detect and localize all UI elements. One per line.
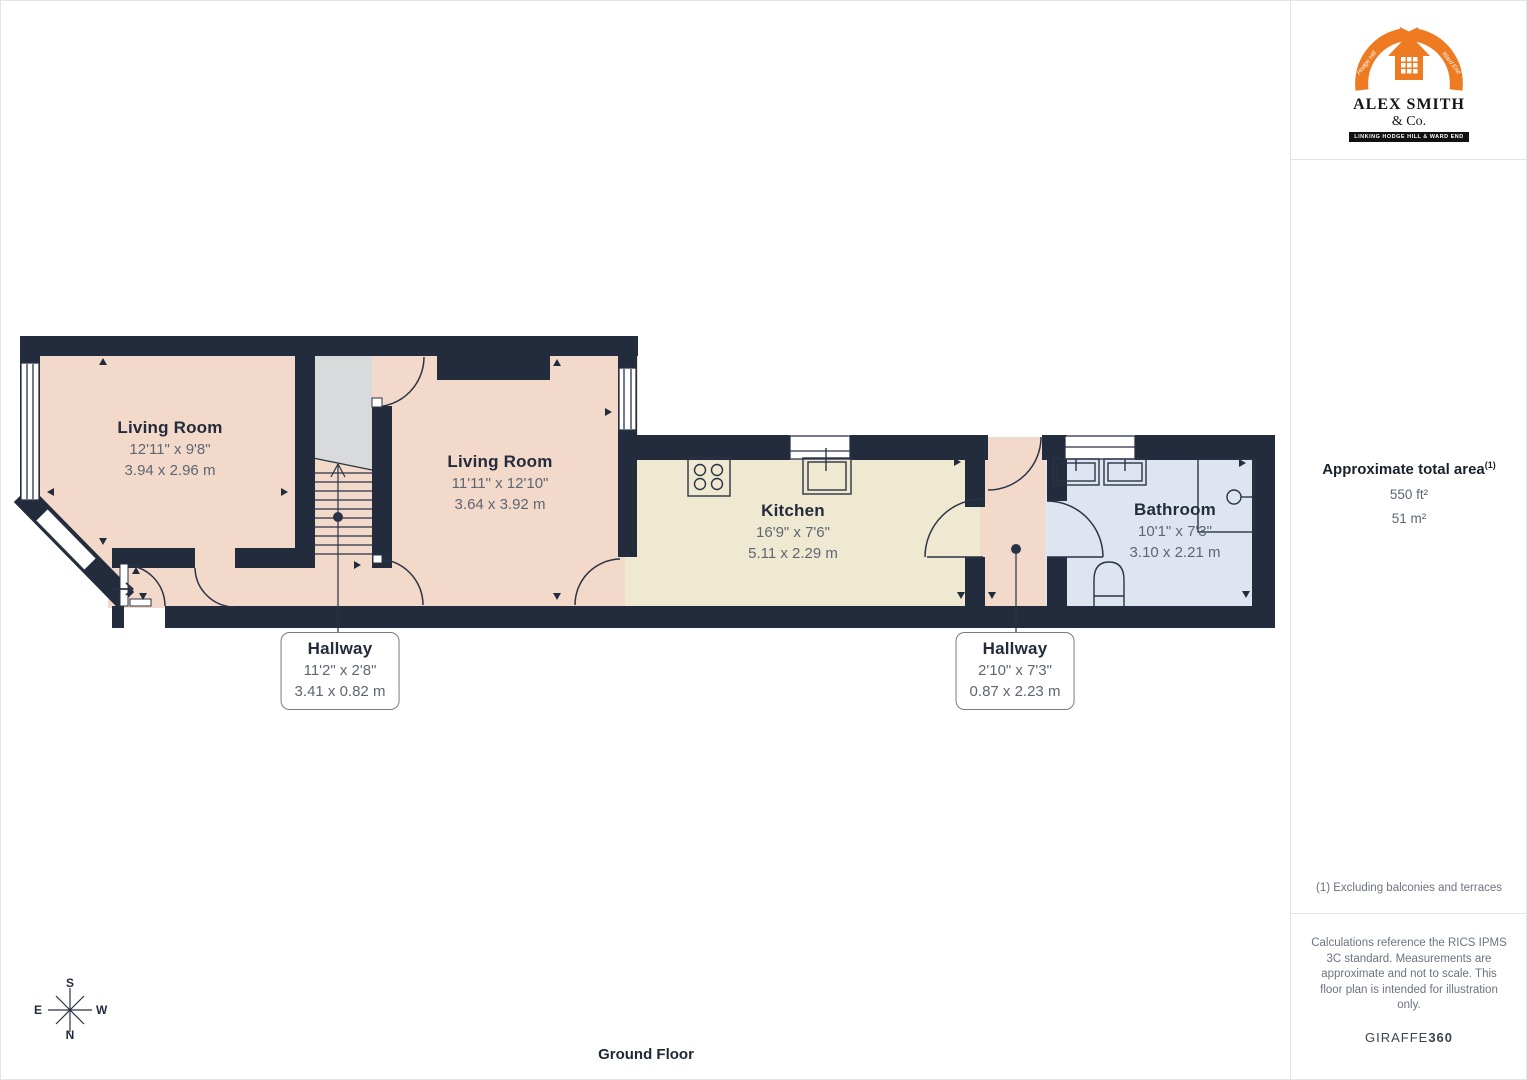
brand-bold: 360 <box>1428 1030 1453 1045</box>
room-label-bathroom: Bathroom 10'1" x 7'3" 3.10 x 2.21 m <box>1130 499 1221 563</box>
room-dim-metric: 0.87 x 2.23 m <box>970 681 1061 702</box>
agency-name-suffix: & Co. <box>1392 114 1426 129</box>
floor-plan-drawing <box>0 0 1290 1080</box>
room-dim-imperial: 10'1" x 7'3" <box>1130 521 1221 542</box>
info-sidebar: Hodge Hill Ward End ALEX SMITH & Co. LIN… <box>1290 0 1527 1080</box>
floor-title: Ground Floor <box>598 1046 694 1063</box>
room-name: Living Room <box>117 417 222 439</box>
room-dim-imperial: 11'11" x 12'10" <box>447 473 552 494</box>
compass-west-label: W <box>96 1003 107 1017</box>
room-dim-imperial: 12'11" x 9'8" <box>117 439 222 460</box>
room-dim-imperial: 16'9" x 7'6" <box>748 522 838 543</box>
footnote-section: (1) Excluding balconies and terraces <box>1291 862 1527 914</box>
room-name: Bathroom <box>1130 499 1221 521</box>
giraffe360-brand: GIRAFFE360 <box>1291 1030 1527 1045</box>
room-name: Kitchen <box>748 500 838 522</box>
room-name: Living Room <box>447 451 552 473</box>
agency-logo: Hodge Hill Ward End ALEX SMITH & Co. LIN… <box>1291 0 1527 160</box>
disclaimer-text: Calculations reference the RICS IPMS 3C … <box>1310 936 1508 1014</box>
room-dim-imperial: 2'10" x 7'3" <box>970 660 1061 681</box>
agency-logo-icon: Hodge Hill Ward End <box>1344 22 1474 102</box>
room-dim-metric: 3.10 x 2.21 m <box>1130 542 1221 563</box>
hallway-label-box-2: Hallway 2'10" x 7'3" 0.87 x 2.23 m <box>956 632 1075 710</box>
total-area-title-text: Approximate total area <box>1322 461 1485 478</box>
floor-plan-page: Living Room 12'11" x 9'8" 3.94 x 2.96 m … <box>0 0 1527 1080</box>
room-label-kitchen: Kitchen 16'9" x 7'6" 5.11 x 2.29 m <box>748 500 838 564</box>
room-label-living-room-2: Living Room 11'11" x 12'10" 3.64 x 3.92 … <box>447 451 552 515</box>
room-dim-metric: 5.11 x 2.29 m <box>748 543 838 564</box>
room-dim-metric: 3.64 x 3.92 m <box>447 494 552 515</box>
compass-south-label: S <box>66 976 74 990</box>
disclaimer-section: Calculations reference the RICS IPMS 3C … <box>1291 936 1527 1014</box>
room-name: Hallway <box>295 638 386 660</box>
total-area-title: Approximate total area(1) <box>1291 460 1527 478</box>
room-name: Hallway <box>970 638 1061 660</box>
brand-normal: GIRAFFE <box>1365 1030 1428 1045</box>
plan-area: Living Room 12'11" x 9'8" 3.94 x 2.96 m … <box>0 0 1290 1080</box>
total-area-ft: 550 ft² <box>1291 487 1527 502</box>
room-dim-metric: 3.94 x 2.96 m <box>117 460 222 481</box>
compass-east-label: E <box>34 1003 42 1017</box>
room-dim-metric: 3.41 x 0.82 m <box>295 681 386 702</box>
total-area-m: 51 m² <box>1291 511 1527 526</box>
total-area-footnote-marker: (1) <box>1485 460 1496 470</box>
compass-north-label: N <box>66 1028 75 1042</box>
footnote-text: (1) Excluding balconies and terraces <box>1316 882 1502 894</box>
compass: S N E W <box>28 976 112 1044</box>
agency-tagline: LINKING HODGE HILL & WARD END <box>1349 132 1468 142</box>
agency-name: ALEX SMITH <box>1353 96 1465 114</box>
hallway-label-box-1: Hallway 11'2" x 2'8" 3.41 x 0.82 m <box>281 632 400 710</box>
room-dim-imperial: 11'2" x 2'8" <box>295 660 386 681</box>
room-label-living-room-1: Living Room 12'11" x 9'8" 3.94 x 2.96 m <box>117 417 222 481</box>
total-area-section: Approximate total area(1) 550 ft² 51 m² <box>1291 460 1527 526</box>
